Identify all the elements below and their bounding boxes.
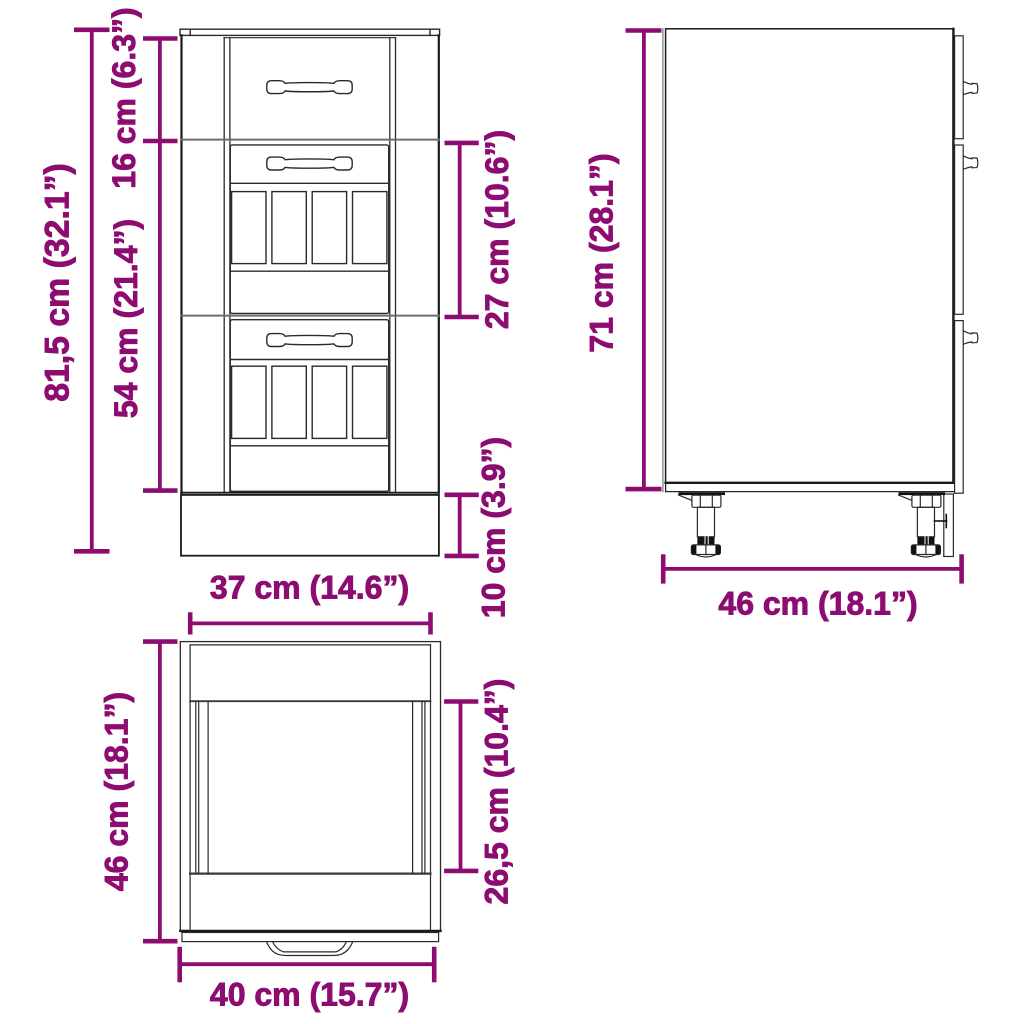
- svg-text:46 cm (18.1”): 46 cm (18.1”): [99, 692, 135, 891]
- svg-text:37 cm (14.6”): 37 cm (14.6”): [210, 570, 409, 606]
- svg-text:46 cm (18.1”): 46 cm (18.1”): [718, 586, 917, 622]
- svg-text:54 cm (21.4”): 54 cm (21.4”): [108, 219, 144, 418]
- svg-text:81,5 cm (32.1”): 81,5 cm (32.1”): [39, 163, 77, 402]
- svg-text:27 cm (10.6”): 27 cm (10.6”): [479, 130, 515, 329]
- svg-text:26,5 cm (10.4”): 26,5 cm (10.4”): [479, 679, 515, 905]
- svg-text:16 cm (6.3”): 16 cm (6.3”): [106, 7, 142, 188]
- svg-text:71 cm (28.1”): 71 cm (28.1”): [584, 153, 620, 352]
- svg-text:10 cm (3.9”): 10 cm (3.9”): [476, 437, 512, 618]
- svg-text:40 cm (15.7”): 40 cm (15.7”): [210, 977, 409, 1013]
